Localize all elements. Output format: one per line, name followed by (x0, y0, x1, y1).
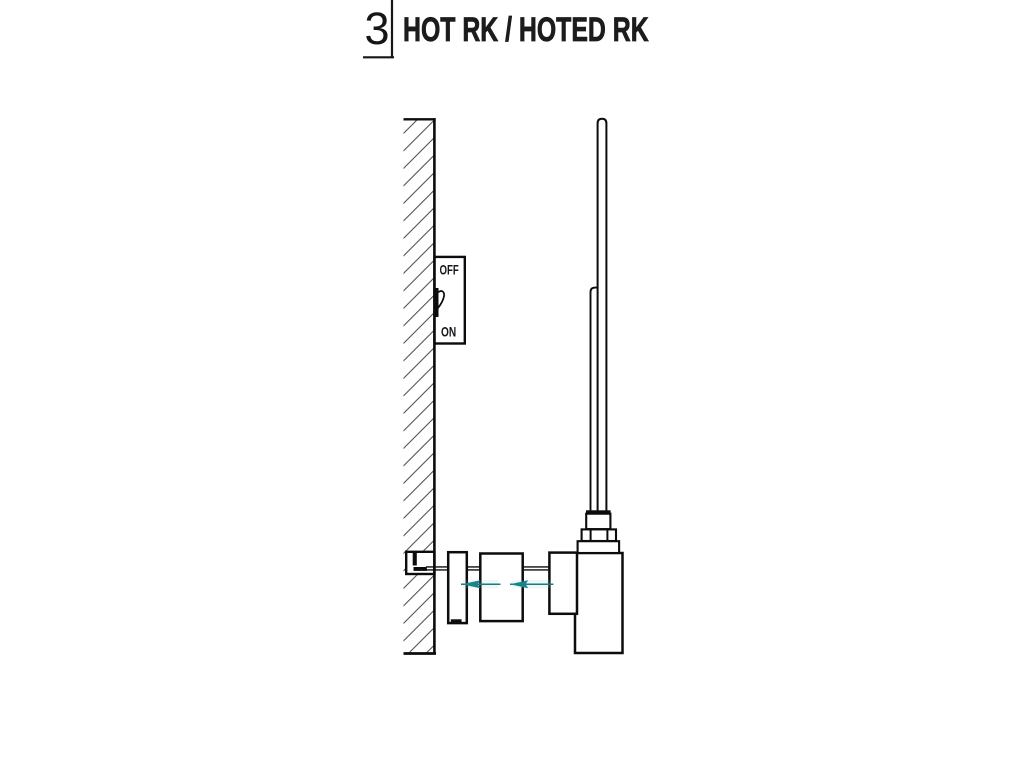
svg-text:ON: ON (441, 324, 456, 340)
svg-text:OFF: OFF (440, 262, 460, 278)
